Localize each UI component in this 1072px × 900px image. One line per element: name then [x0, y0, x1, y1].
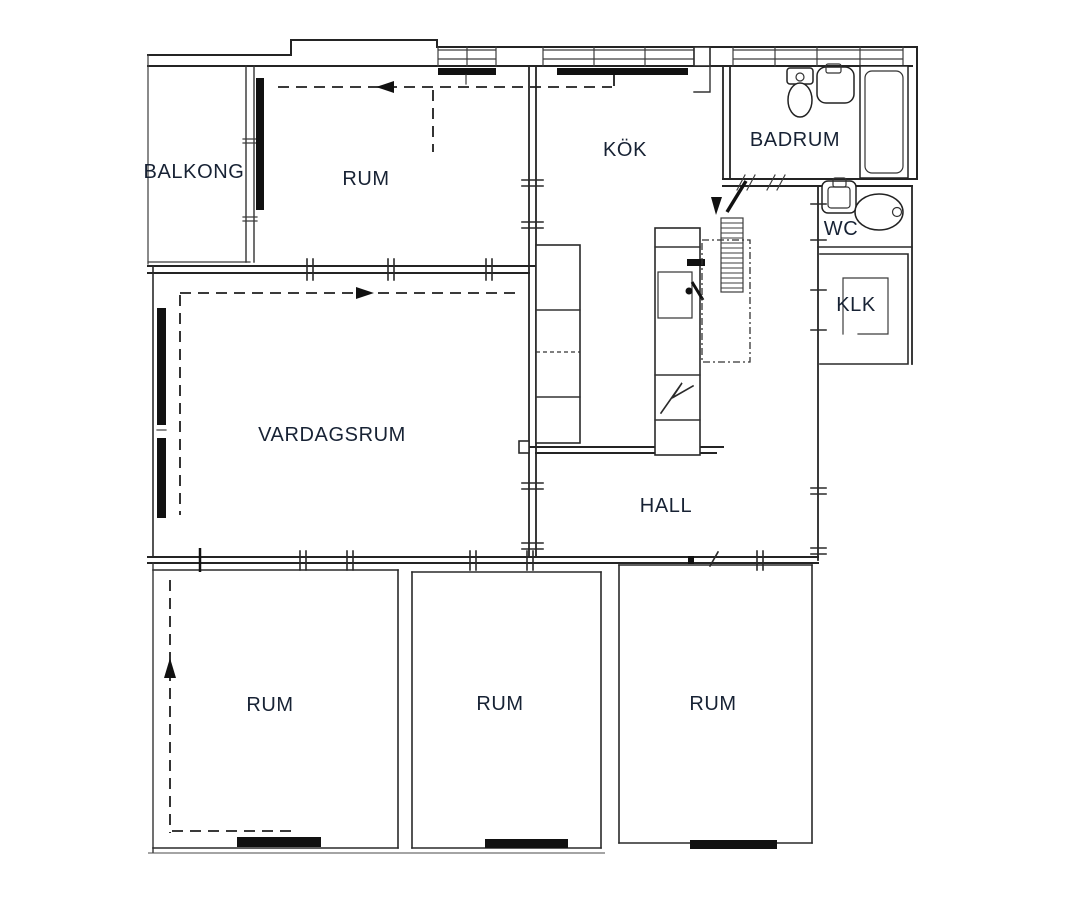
room-label-rum-bottom-middle: RUM: [476, 693, 523, 715]
balcony-door-bar: [256, 78, 264, 210]
radiator: [557, 68, 688, 75]
window-bar: [157, 438, 166, 518]
room-label-rum-top: RUM: [342, 168, 389, 190]
radiator: [690, 840, 777, 849]
wall-pillar: [694, 47, 710, 66]
radiators: [237, 68, 777, 849]
room-label-wc: WC: [824, 218, 859, 240]
bathtub: [860, 66, 908, 178]
toilet-wc: [855, 194, 903, 230]
room-label-kok: KÖK: [603, 139, 647, 161]
toilet-bowl: [788, 83, 812, 117]
arrow-right-icon: [356, 287, 374, 299]
badrum-door: [711, 175, 785, 215]
radiator: [485, 839, 568, 848]
wall-ticks: [200, 180, 826, 572]
room-label-badrum: BADRUM: [750, 129, 840, 151]
floor-plan-canvas: BALKONG RUM KÖK BADRUM WC KLK VARDAGSRUM…: [0, 0, 1072, 900]
kitchen-fittings: [536, 218, 750, 455]
vent-shaft: [721, 218, 743, 292]
badrum-fixtures: [787, 64, 908, 178]
room-label-balkong: BALKONG: [144, 161, 245, 183]
radiator: [237, 837, 321, 847]
kitchen-counter: [536, 245, 580, 443]
room-label-rum-bottom-right: RUM: [689, 693, 736, 715]
arrow-left-icon: [376, 81, 394, 93]
window-bar: [157, 308, 166, 425]
radiator: [438, 68, 496, 75]
room-label-vardagsrum: VARDAGSRUM: [258, 424, 406, 446]
room-label-klk: KLK: [836, 294, 876, 316]
floor-plan-drawing: BALKONG RUM KÖK BADRUM WC KLK VARDAGSRUM…: [0, 0, 1072, 900]
arrow-up-icon: [164, 658, 176, 678]
room-label-rum-bottom-left: RUM: [246, 694, 293, 716]
room-label-hall: HALL: [640, 495, 692, 517]
